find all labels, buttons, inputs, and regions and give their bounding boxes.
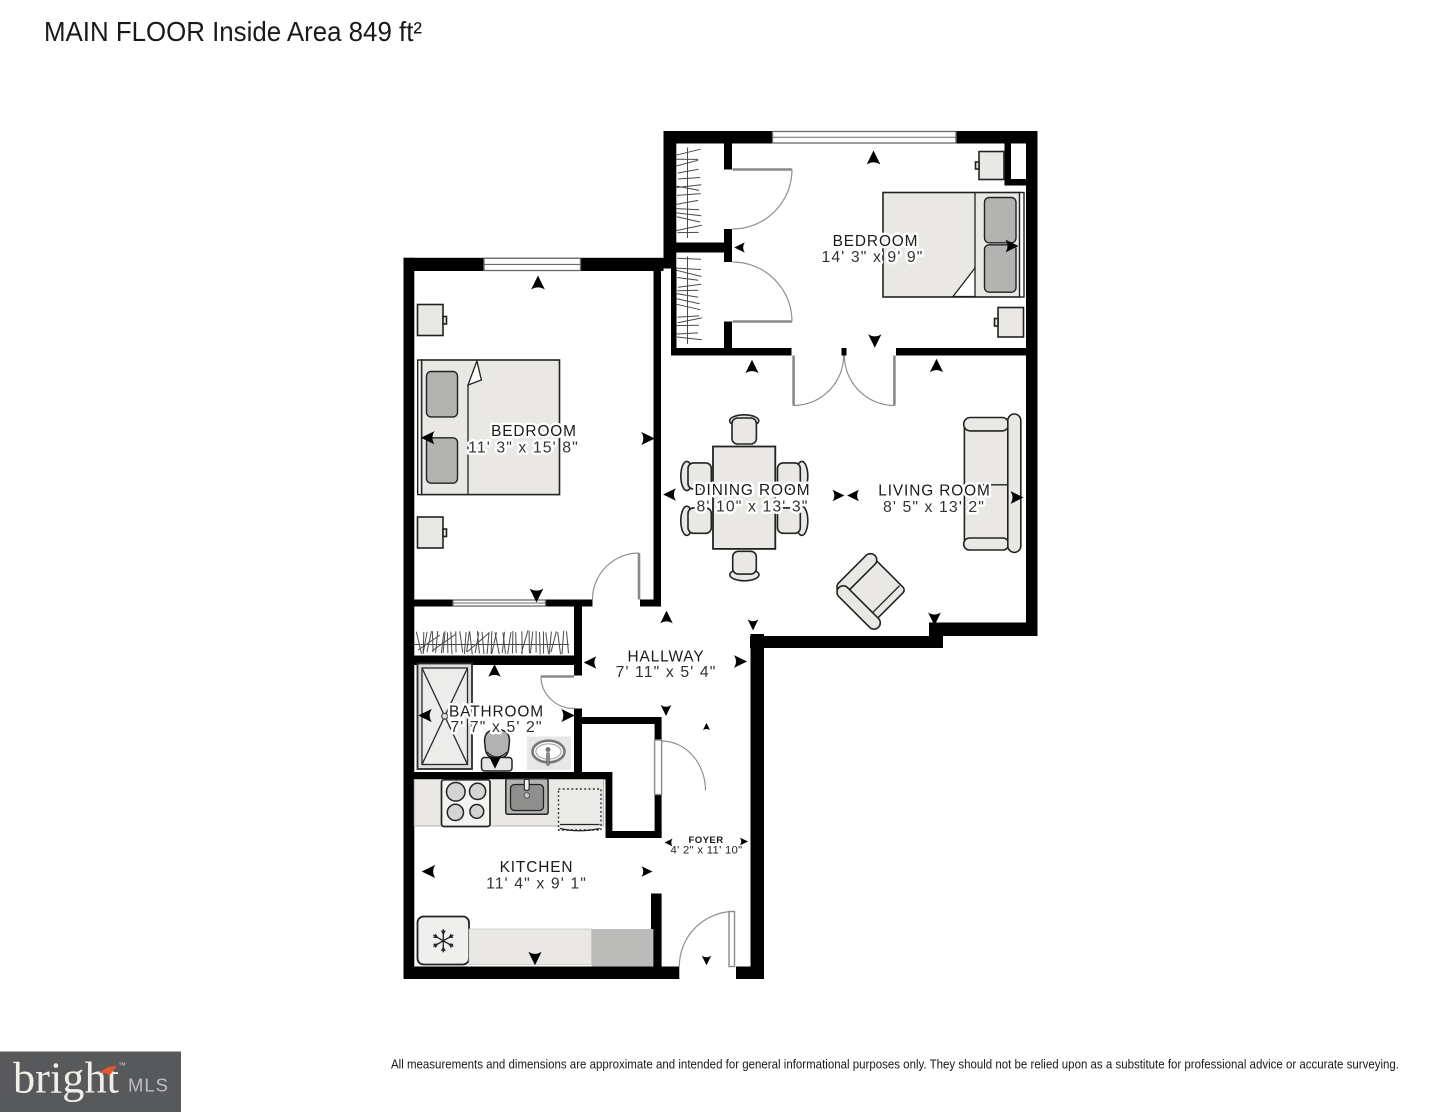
svg-text:BEDROOM: BEDROOM <box>833 233 919 250</box>
svg-text:DINING ROOM: DINING ROOM <box>695 482 811 499</box>
svg-text:11' 4" x 9' 1": 11' 4" x 9' 1" <box>486 876 587 893</box>
svg-text:LIVING ROOM: LIVING ROOM <box>878 483 991 500</box>
svg-text:8' 5" x 13' 2": 8' 5" x 13' 2" <box>883 499 985 516</box>
svg-text:MAIN FLOOR Inside Area 849 ft²: MAIN FLOOR Inside Area 849 ft² <box>44 16 422 47</box>
svg-text:8' 10" x 13' 3": 8' 10" x 13' 3" <box>697 499 809 516</box>
svg-text:7' 11" x 5' 4": 7' 11" x 5' 4" <box>616 664 717 681</box>
svg-text:MLS: MLS <box>128 1076 169 1096</box>
svg-text:14' 3" x 9' 9": 14' 3" x 9' 9" <box>821 249 923 266</box>
svg-text:4' 2" x 11' 10": 4' 2" x 11' 10" <box>671 845 743 857</box>
svg-text:HALLWAY: HALLWAY <box>628 649 705 666</box>
svg-text:BATHROOM: BATHROOM <box>449 704 544 721</box>
svg-text:11' 3" x 15' 8": 11' 3" x 15' 8" <box>468 440 579 457</box>
svg-text:KITCHEN: KITCHEN <box>500 859 574 876</box>
svg-text:All measurements and dimension: All measurements and dimensions are appr… <box>391 1058 1399 1072</box>
svg-text:bright: bright <box>13 1054 119 1103</box>
svg-text:™: ™ <box>118 1061 126 1070</box>
svg-text:7' 7" x 5' 2": 7' 7" x 5' 2" <box>450 719 542 736</box>
svg-text:BEDROOM: BEDROOM <box>491 423 577 440</box>
